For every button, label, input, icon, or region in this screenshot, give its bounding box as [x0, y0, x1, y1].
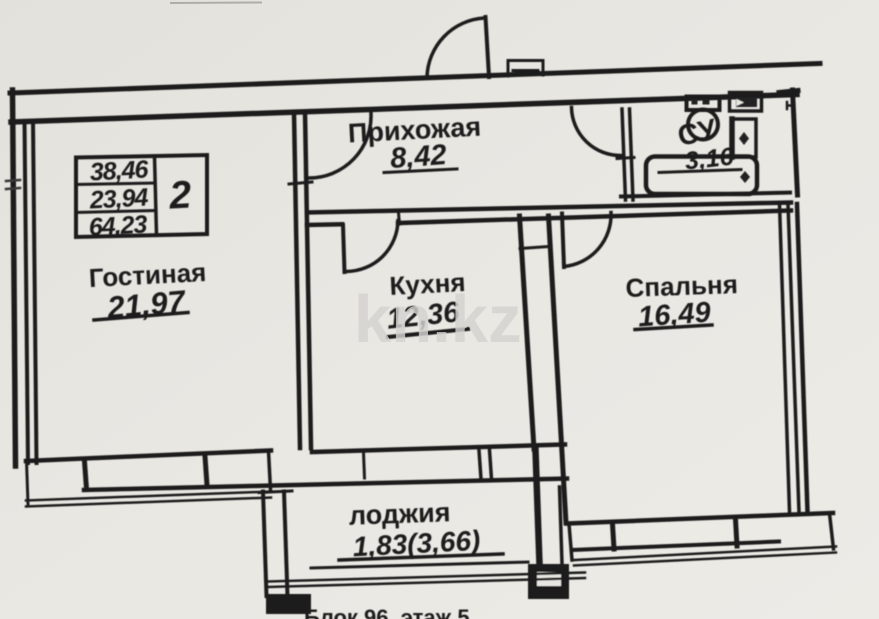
svg-text:21,97: 21,97: [105, 284, 188, 326]
svg-text:лоджия: лоджия: [348, 497, 451, 531]
svg-text:2: 2: [167, 173, 192, 217]
svg-text:Блок 96, этаж 5: Блок 96, этаж 5: [304, 605, 470, 619]
svg-text:16,49: 16,49: [637, 297, 712, 334]
svg-text:64,23: 64,23: [88, 210, 148, 241]
svg-text:38,46: 38,46: [89, 155, 150, 186]
svg-text:kn.kz: kn.kz: [354, 282, 522, 357]
svg-text:8,42: 8,42: [389, 139, 448, 175]
